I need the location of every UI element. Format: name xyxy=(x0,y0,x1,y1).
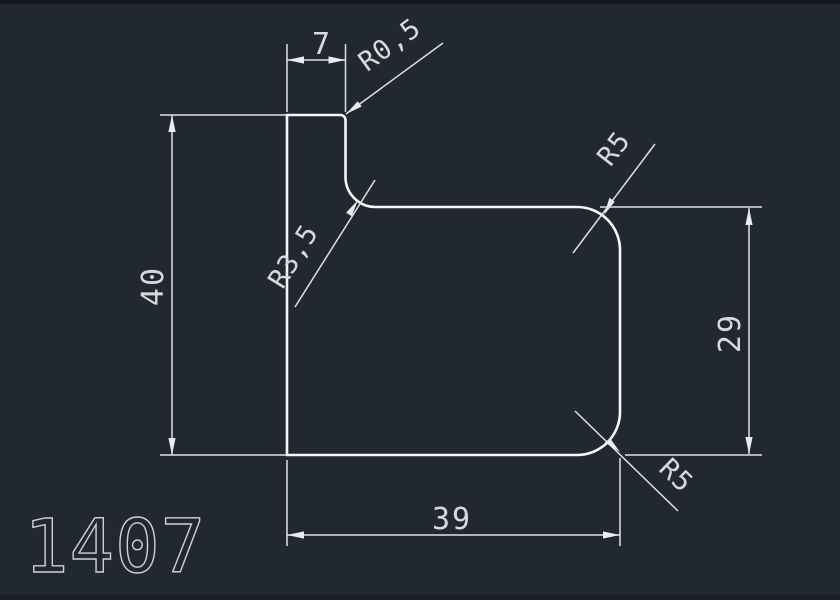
dimension-arrow xyxy=(603,531,620,538)
cad-drawing-viewport[interactable]: 7 R0,5 R3,5 40 R5 xyxy=(0,0,840,600)
leader-arrow xyxy=(346,200,358,216)
dimension-arrow xyxy=(168,438,175,455)
radius-step-large-label: R3,5 xyxy=(262,219,325,294)
radius-corner-bottom-label: R5 xyxy=(653,453,699,499)
leader-arrow xyxy=(605,438,620,452)
leader-line xyxy=(575,411,678,511)
dimension-arrow xyxy=(287,56,304,63)
dim-width-bottom[interactable]: 39 xyxy=(287,458,620,546)
radius-corner-top-label: R5 xyxy=(591,126,637,172)
dimension-arrow xyxy=(745,208,752,225)
dim-height-left-label: 40 xyxy=(136,266,171,306)
dimension-arrow xyxy=(168,115,175,132)
dim-width-top-label: 7 xyxy=(312,27,332,62)
radius-step-small-label: R0,5 xyxy=(353,12,427,78)
dim-height-right-label: 29 xyxy=(713,313,748,353)
leader-radius-step-large[interactable]: R3,5 xyxy=(262,180,375,307)
dim-width-top[interactable]: 7 xyxy=(287,27,346,112)
part-number-text[interactable]: 1407 xyxy=(24,504,206,590)
leader-radius-corner-bottom[interactable]: R5 xyxy=(575,411,699,511)
dim-width-bottom-label: 39 xyxy=(432,502,472,537)
leader-arrow xyxy=(346,101,362,114)
dim-height-right[interactable]: 29 xyxy=(600,207,762,455)
dimension-arrow xyxy=(287,531,304,538)
part-outline[interactable] xyxy=(287,115,620,455)
dimension-arrow xyxy=(745,437,752,454)
drawing-canvas[interactable]: 7 R0,5 R3,5 40 R5 xyxy=(0,0,840,600)
leader-radius-step-small[interactable]: R0,5 xyxy=(346,12,443,114)
dim-height-left[interactable]: 40 xyxy=(136,115,287,455)
leader-radius-corner-top[interactable]: R5 xyxy=(573,126,655,253)
